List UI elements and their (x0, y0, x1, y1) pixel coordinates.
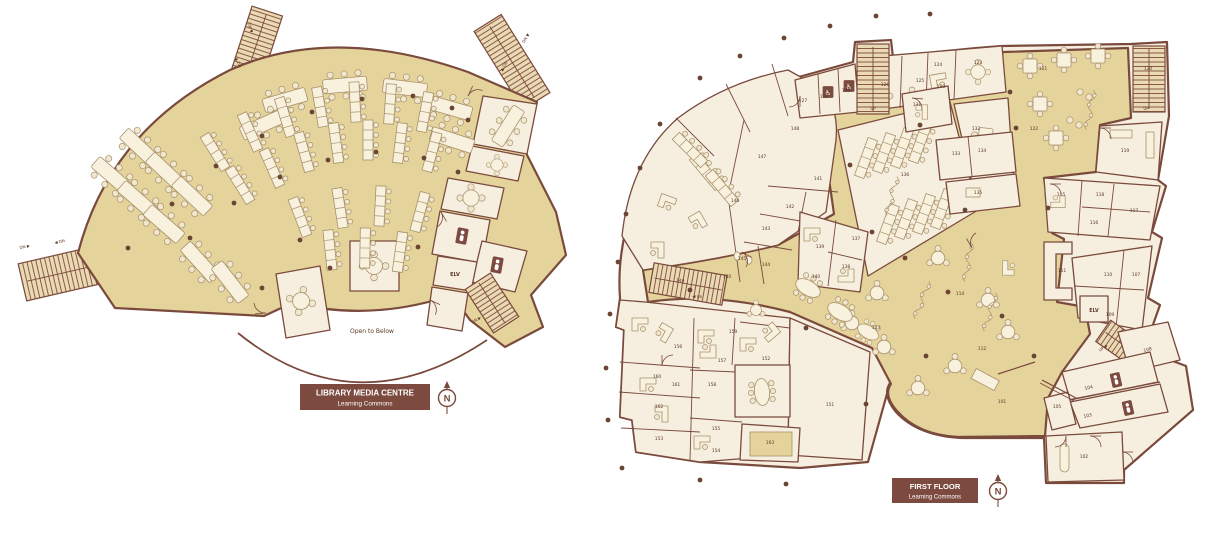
room-label: 150 (723, 274, 732, 280)
room-label: 143 (762, 226, 771, 232)
room-label: 142 (786, 204, 795, 210)
room-label: 159 (729, 329, 738, 335)
compass-icon: N (439, 381, 456, 414)
room-label: 155 (712, 426, 721, 432)
stair-label: DN ▶ (19, 243, 31, 250)
plan-title: FIRST FLOOR (910, 482, 961, 491)
elevator-label: ELV (1089, 308, 1099, 314)
room-label: 113 (872, 325, 881, 331)
room-label: 134 (978, 148, 987, 154)
elevator-label: ELV (450, 272, 460, 278)
room-label: 153 (655, 436, 664, 442)
compass-icon: N (990, 474, 1007, 507)
stairs (857, 44, 889, 114)
room-label: 127 (799, 98, 808, 104)
room-label: 157 (718, 358, 727, 364)
room-label: 109 (1106, 312, 1115, 318)
room-label: 123 (974, 60, 983, 66)
right-plan-title-block: FIRST FLOOR Learning Commons (892, 478, 978, 503)
room-label: 105 (1053, 404, 1062, 410)
open-to-below-outline (238, 333, 487, 382)
room-label: 128 (820, 94, 829, 100)
room-label: 145 (738, 256, 747, 262)
room-label: 124 (934, 62, 943, 68)
room-label: 119 (1121, 148, 1130, 154)
room-label: 137 (852, 236, 861, 242)
room-label: 144 (762, 262, 771, 268)
room-label: 112 (978, 346, 987, 352)
stair-label: ◀ DN (54, 238, 65, 245)
room-label: 163 (766, 440, 775, 446)
room-label: 148 (791, 126, 800, 132)
plan-subtitle: Learning Commons (909, 495, 961, 501)
room-label: 149 (675, 277, 684, 284)
room-label: 130 (937, 84, 946, 90)
room-label: 152 (762, 356, 771, 362)
plan-title: LIBRARY MEDIA CENTRE (316, 389, 415, 398)
room-label: 117 (1130, 208, 1139, 214)
room-label: 160 (653, 374, 662, 380)
room-label: 141 (814, 176, 823, 182)
room-label: 151 (826, 402, 835, 408)
room-label: 110 (1104, 272, 1113, 278)
floor-plan-canvas: ♿ (0, 0, 1226, 553)
svg-text:N: N (995, 486, 1002, 497)
floor-plan-page: ♿ (0, 0, 1226, 553)
plan-subtitle: Learning Commons (338, 401, 393, 408)
room-label: 135 (974, 190, 983, 196)
room-label: 118 (1096, 192, 1105, 198)
room-label: 147 (758, 154, 767, 160)
room-label: 101 (998, 399, 1007, 405)
svg-text:N: N (444, 393, 451, 404)
room-label: 139 (816, 244, 825, 250)
room-label: 102 (1080, 454, 1089, 460)
room-label: 132 (972, 126, 981, 132)
room-label: 120 (1144, 66, 1153, 72)
room-label: 121 (1039, 66, 1048, 72)
stair-label: UP (1143, 106, 1149, 111)
room-label: 140 (812, 274, 821, 280)
open-to-below-label: Open to Below (350, 328, 394, 335)
room-label: 161 (672, 382, 681, 388)
room-label: 125 (916, 78, 925, 84)
room-label: 107 (1132, 272, 1141, 278)
stair-label: UP (870, 106, 876, 111)
room-label: 154 (712, 448, 721, 454)
room-label: 116 (1090, 220, 1099, 226)
library-media-centre-plan: DN ▶◀ DNDN ▼▲ DNDN ▼▲ DNDN ▶ELVOpen to B… (18, 6, 566, 414)
stairs (1133, 46, 1165, 112)
room-label: 133 (952, 151, 961, 157)
room-label: 114 (956, 291, 965, 297)
room-label: 158 (708, 382, 717, 388)
room-label: 131 (913, 102, 922, 108)
room-label: 146 (731, 198, 740, 204)
room-label: 138 (842, 264, 851, 270)
room-label: 115 (1057, 192, 1066, 198)
stair-label: DN ▼ (521, 32, 531, 44)
room-label: 111 (1058, 268, 1067, 274)
first-floor-plan: 1011021031041051071081091101111121131141… (604, 12, 1193, 507)
room-label: 156 (674, 344, 683, 350)
left-plan-title-block: LIBRARY MEDIA CENTRE Learning Commons (300, 384, 430, 410)
room-label: 122 (1030, 126, 1039, 132)
room-label: 136 (901, 172, 910, 178)
room-label: 126 (881, 82, 890, 88)
room-label: 129 (842, 88, 851, 94)
room-label: 162 (655, 404, 664, 410)
